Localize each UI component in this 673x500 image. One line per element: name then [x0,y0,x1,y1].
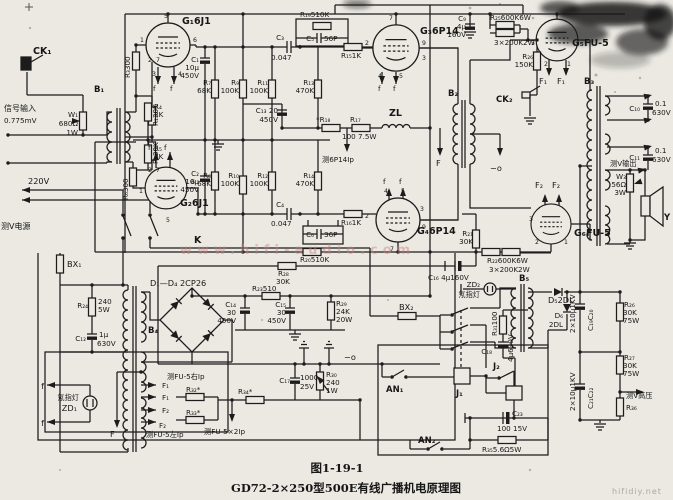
junction-dot [316,126,319,129]
label-g4-1: 4 [384,188,388,195]
label-g2: G₂6J1 [180,198,209,209]
junction-dot [428,126,431,129]
label-c10w: 630V [652,108,671,117]
junction-dot [578,164,581,167]
junction-dot [618,290,621,293]
label-mfur: 测FU-5右Ip [167,372,205,381]
junction-dot [302,362,305,365]
label-g1-6: 4 [178,71,182,78]
resistor-r22a [482,249,500,256]
label-hv1: 2×10μ1KV [568,294,577,333]
resistor-r13 [315,80,322,98]
junction-dot [316,212,319,215]
label-w3w: 3W [614,188,626,197]
label-m6p14: 测6P14Ip [322,155,354,164]
label-r30w: 1W [326,386,338,395]
label-r24: R₂₄ [77,301,88,310]
label-c9w: 160V [447,30,466,39]
resistor-r25a [496,22,514,29]
label-g4-2: 5 [401,188,405,195]
resistor-r8 [212,172,219,190]
label-g5-2: 1 [567,61,571,68]
label-c6v: 36P [324,230,338,239]
junction-dot [6,161,9,164]
label-r32: R₃₂* [186,385,201,394]
label-ck2: CK₂ [496,95,513,105]
junction-dot [150,135,153,138]
label-b3: B₃ [584,77,594,87]
label-r26bw: 75W [623,316,639,325]
label-zd2n: 氖指灯 [458,290,480,299]
label-b1: B₁ [94,85,104,95]
label-r12v: 100K [250,179,269,188]
label-c12v: 1μ [99,330,109,339]
junction-dot [484,374,487,377]
label-g5-0: 3 [531,40,535,47]
label-mful: 测FU-5左Ip [146,430,184,439]
label-g4-0: 2 [365,213,369,220]
resistor-r3 [133,52,140,70]
resistor-r18 [322,125,340,132]
label-f: f [383,177,386,186]
junction-dot [90,350,93,353]
resistor-r19 [313,23,331,30]
label-r31: R₃₁100 [490,311,499,336]
label-r25v: 3×200K2W [494,38,535,47]
ground-ck2 [524,118,536,124]
junction-dot [468,12,471,15]
label-w1v: 680Ω [59,119,79,128]
label-r17: R₁₇ [350,115,361,124]
label-c11w: 630V [652,155,671,164]
label-c1w: 450V [180,71,199,80]
junction-dot [134,94,137,97]
junction-dot [646,145,649,148]
label-r17v: 100 7.5W [342,132,377,141]
label-mo2: −o [344,352,356,362]
label-g6: G₆FU-5 [574,228,611,239]
tube-g4-6p14 [376,198,420,242]
cap-c23 [506,412,510,424]
junction-dot [578,290,581,293]
resistor-r21 [473,230,480,248]
label-g3-0: 7 [389,15,393,22]
label-fdn: F [110,429,115,439]
b2-coils [453,100,475,168]
label-r25: R₂₅600K6W [490,13,531,22]
label-hv2: 2×10μ1KV [568,372,577,411]
stray-mark [25,3,33,11]
resistor-r33 [186,417,204,424]
label-r5v: 2K [154,152,164,161]
label-r36: R₃₆ [626,403,637,412]
label-f: f [399,177,402,186]
label-r29w: 20W [336,315,352,324]
label-ff1a: F₁ [162,381,169,390]
label-caption: GD72-2×250型500E有线广播机电原理图 [231,481,461,495]
tube-g3-6p14 [373,25,419,71]
label-wm2: hifidiy.net [612,487,662,496]
junction-dot [270,212,273,215]
junction-dot [146,138,149,141]
schematic-canvas: CK₁信号输入0.775mVW₁680Ω1WB₁R₁30KR₂30KR₃300R… [0,0,673,500]
resistor-r14 [315,172,322,190]
label-g1-5: 3 [152,71,156,78]
label-mvhv: 测V高压 [626,391,652,400]
label-zd2: ZD₂ [467,280,480,289]
label-r34: R₃₄* [238,387,253,396]
junction-dot [428,294,431,297]
label-zl: ZL [389,108,402,119]
label-r18: *R₁₈ [316,115,330,124]
junction-dot [578,350,581,353]
b4-primary [123,286,136,452]
label-zd1n: 氖指灯 [57,393,79,402]
label-fmid: F [436,158,441,168]
label-f: f [170,84,173,93]
label-g2-3: 6 [191,179,195,186]
label-c23v: 100 15V [497,424,527,433]
label-f1a: F₁ [539,76,547,86]
resistor-r12 [269,172,276,190]
junction-dot [468,416,471,419]
label-g3-4: 4 [378,73,382,80]
label-g2-2: 1 [139,188,143,195]
label-c1920: C₁₉C₂₀ [586,309,595,331]
schematic-page: CK₁信号输入0.775mVW₁680Ω1WB₁R₁30KR₂30KR₃300R… [0,0,673,500]
junction-dot [230,398,233,401]
junction-dot [428,250,431,253]
label-r10v: 100K [221,179,240,188]
label-g1: G₁6J1 [182,16,211,27]
label-j1: J₁ [455,389,463,399]
label-c13v: 450V [259,115,278,124]
neon-lamp-zd1 [83,396,97,410]
resistor-r6 [130,168,137,186]
b4-secondary [141,292,146,448]
label-c5: C₅ [306,34,314,43]
resistor-r32 [186,394,204,401]
junction-dot [474,250,477,253]
label-c17v: 1000 [300,373,319,382]
junction-dot [358,398,361,401]
transformer-b1 [107,108,130,164]
cap-c12 [87,334,97,340]
cap-c17 [290,378,300,384]
label-ff2b: F₂ [159,421,166,430]
zl-choke-coil [382,125,410,128]
label-r33: R₃₃* [186,408,201,417]
label-sig1: 信号输入 [4,103,36,113]
junction-dot [213,138,216,141]
label-b5: B₅ [519,274,529,284]
label-c3: C₃ [276,33,284,42]
junction-dot [618,390,621,393]
labels-layer: CK₁信号输入0.775mVW₁680Ω1WB₁R₁30KR₂30KR₃300R… [1,10,671,496]
junction-dot [288,294,291,297]
label-fig: 图1-19-1 [310,461,363,475]
label-w1: W₁ [68,110,78,119]
label-c17w: 25V [300,382,314,391]
label-b4: B₄ [148,326,158,336]
ground-filter [289,334,301,340]
label-c3v: 0.047 [271,53,292,62]
label-c10v: 0.1 [655,99,666,108]
fuse-bx2 [398,313,416,320]
label-f: f [153,84,156,93]
label-c18: C₁₈ [481,347,492,356]
label-g5-1: 2 [544,61,548,68]
label-f2a: F₂ [535,180,543,190]
label-c4: C₄ [276,200,284,209]
label-c15w: 450V [267,316,286,325]
jack-ck1 [21,57,31,70]
junction-dot [81,133,84,136]
label-bx1: BX₁ [67,259,82,269]
resistor-r11 [269,80,276,98]
label-g1-1: 5 [164,13,168,20]
label-r15: R₁₅1K [341,51,361,60]
label-d6v: 2DL [549,320,563,329]
label-r9v: 100K [221,86,240,95]
resistor-r22b [502,249,520,256]
label-g1-0: 1 [140,37,144,44]
cap-c1 [200,58,210,64]
label-f1b: F₁ [557,76,565,86]
label-g6-0: 3 [529,216,533,223]
junction-dot [190,294,193,297]
junction-dot [298,45,301,48]
label-r13v: 470K [296,86,315,95]
label-c16: C₁₆ 4μ160V [428,273,469,282]
junction-dot [6,133,9,136]
label-r11v: 100K [250,86,269,95]
junction-dot [241,138,244,141]
cap-c14 [240,308,250,314]
label-g6-2: 1 [564,239,568,246]
label-v220: 220V [28,176,50,186]
junction-dot [280,126,283,129]
label-g3-5: 5 [399,73,403,80]
label-r3: R₃300 [123,56,132,78]
label-r23: R₂₃510 [252,284,277,293]
label-f: f [393,84,396,93]
junction-dot [298,212,301,215]
junction-dot [213,212,216,215]
cap-c16 [458,261,462,271]
label-f: f [164,143,167,152]
label-r16: R₁₆1K [341,218,361,227]
label-r7v: 68K [197,86,211,95]
label-c13: C₁₃ 20 [256,106,279,115]
label-f: f [378,84,381,93]
label-g2-1: 7 [156,167,160,174]
label-g1-4: 7 [156,57,160,64]
label-mo1: −o [490,163,502,173]
resistor-r9 [240,80,247,98]
junction-dot [643,168,646,171]
junction-dot [318,362,321,365]
resistor-r16 [344,211,362,218]
resistor-r17 [352,125,370,132]
junction-dot [139,370,142,373]
junction-dot [293,362,296,365]
resistor-r7 [212,80,219,98]
ground-center [212,144,224,150]
relay-j2-coil [506,386,522,400]
label-ff2a: F₂ [162,406,169,415]
label-g1-2: 6 [193,37,197,44]
label-f2b: F₂ [552,180,560,190]
label-g4-5: 7 [390,246,394,253]
resistor-r25b [496,30,514,37]
junction-dot [646,118,649,121]
label-ck1: CK₁ [33,46,52,57]
junction-dot [270,45,273,48]
junction-dot [241,12,244,15]
pot-w1 [80,112,87,130]
label-an2: AN₂ [418,436,436,446]
label-g4-3: 3 [420,206,424,213]
label-spk: Y [663,213,671,223]
label-r8v: 68K [197,179,211,188]
cap-c15 [285,308,295,314]
relay-j1-coil [454,368,470,384]
label-c5v: 56P [324,34,338,43]
junction-dot [90,283,93,286]
resistor-r34 [246,397,264,404]
label-mfu2: 测FU-5×2Ip [204,427,245,436]
label-g3-3: 3 [422,55,426,62]
label-wm1: www.hifi-audio.com [180,243,415,258]
label-b2: B₂ [448,89,458,99]
label-sig2: 0.775mV [4,116,37,125]
label-d6: D₆ [555,311,564,320]
label-an1: AN₁ [386,385,404,395]
junction-dot [134,43,137,46]
c5-wires [296,33,348,43]
label-w1w: 1W [66,128,78,137]
junction-dot [618,350,621,353]
label-r28v: 30K [276,277,290,286]
label-c12w: 630V [97,339,116,348]
label-g6-1: 2 [535,239,539,246]
junction-dot [203,138,206,141]
label-c10: C₁₀ [629,104,640,113]
junction-dot [565,290,568,293]
junction-dot [468,438,471,441]
junction-dot [628,168,631,171]
label-j2: J₂ [492,362,500,372]
label-r27w: 75W [623,369,639,378]
pot-w3 [627,174,634,192]
junction-dot [121,283,124,286]
label-zd1: ZD₁ [62,403,77,413]
label-bx2: BX₂ [399,302,414,312]
label-mvpow: 测V电源 [1,221,30,231]
junction-dot [270,138,273,141]
label-c12: C₁₂ [75,334,86,343]
label-r26v: 150K [515,60,534,69]
label-g1-3: 2 [148,57,152,64]
junction-dot [628,238,631,241]
junction-dot [241,212,244,215]
resistor-r15 [344,44,362,51]
label-g3-2: 2 [365,40,369,47]
resistor-r36 [617,398,624,416]
junction-dot [213,45,216,48]
label-r21v: 30K [459,237,473,246]
fuse-bx1 [57,255,64,273]
label-g3-1: 9 [422,40,426,47]
junction-dot [203,212,206,215]
label-c4v: 0.047 [271,219,292,228]
junction-dot [196,212,199,215]
junction-dot [243,294,246,297]
resistor-r23 [262,293,280,300]
b5-secondary-wires [461,284,620,386]
label-r22: R₂₂600K6W [487,256,528,265]
label-r4v: 2K [154,110,164,119]
label-d14: D₁—D₄ 2CP26 [150,278,206,288]
label-g2-0: 2 [148,167,152,174]
tube-g6-fu5 [531,204,571,244]
junction-dot [535,38,538,41]
label-mvout: 测V输出 [610,159,636,168]
label-c23: C₂₃ [512,409,523,418]
junction-dot [327,362,330,365]
junction-dot [241,45,244,48]
label-c11v: 0.1 [655,146,666,155]
bias-grounds-up [299,342,334,349]
label-c18v: 4μ630V [506,334,515,362]
label-r22v: 3×200K2W [489,265,530,274]
label-ff1b: F₁ [162,393,169,402]
junction-dot [394,12,397,15]
label-c14w: 450V [217,316,236,325]
speaker-cone [650,187,663,226]
label-c17: C₁₇ [279,376,290,385]
junction-dot [578,418,581,421]
speaker-frame [641,196,650,216]
neon-lamp-zd2 [484,283,496,295]
label-g4-4: 9 [422,224,426,231]
junction-dot [646,94,649,97]
resistor-r31 [500,316,507,334]
label-c6: C₆ [306,230,314,239]
label-r35: R₃₅5.6Ω5W [482,445,521,454]
resistor-r10 [240,176,247,194]
label-r6: R₆300 [121,178,130,200]
ground-hv [594,424,606,430]
junction-dot [203,45,206,48]
resistor-r24 [89,298,96,316]
junction-dot [329,294,332,297]
hv-column-wires [580,166,642,423]
tube-g1-6j1 [146,23,190,67]
label-c2122: C₂₁C₂₂ [586,387,595,409]
label-r19: R₁₉510K [300,10,329,19]
junction-dot [380,362,383,365]
label-r14v: 470K [296,179,315,188]
label-r24w: 5W [98,305,110,314]
resistor-r29 [328,302,335,320]
resistor-r26 [534,52,541,70]
b4-taps [117,292,232,426]
label-g2-4: 5 [166,217,170,224]
resistor-r35 [498,437,516,444]
